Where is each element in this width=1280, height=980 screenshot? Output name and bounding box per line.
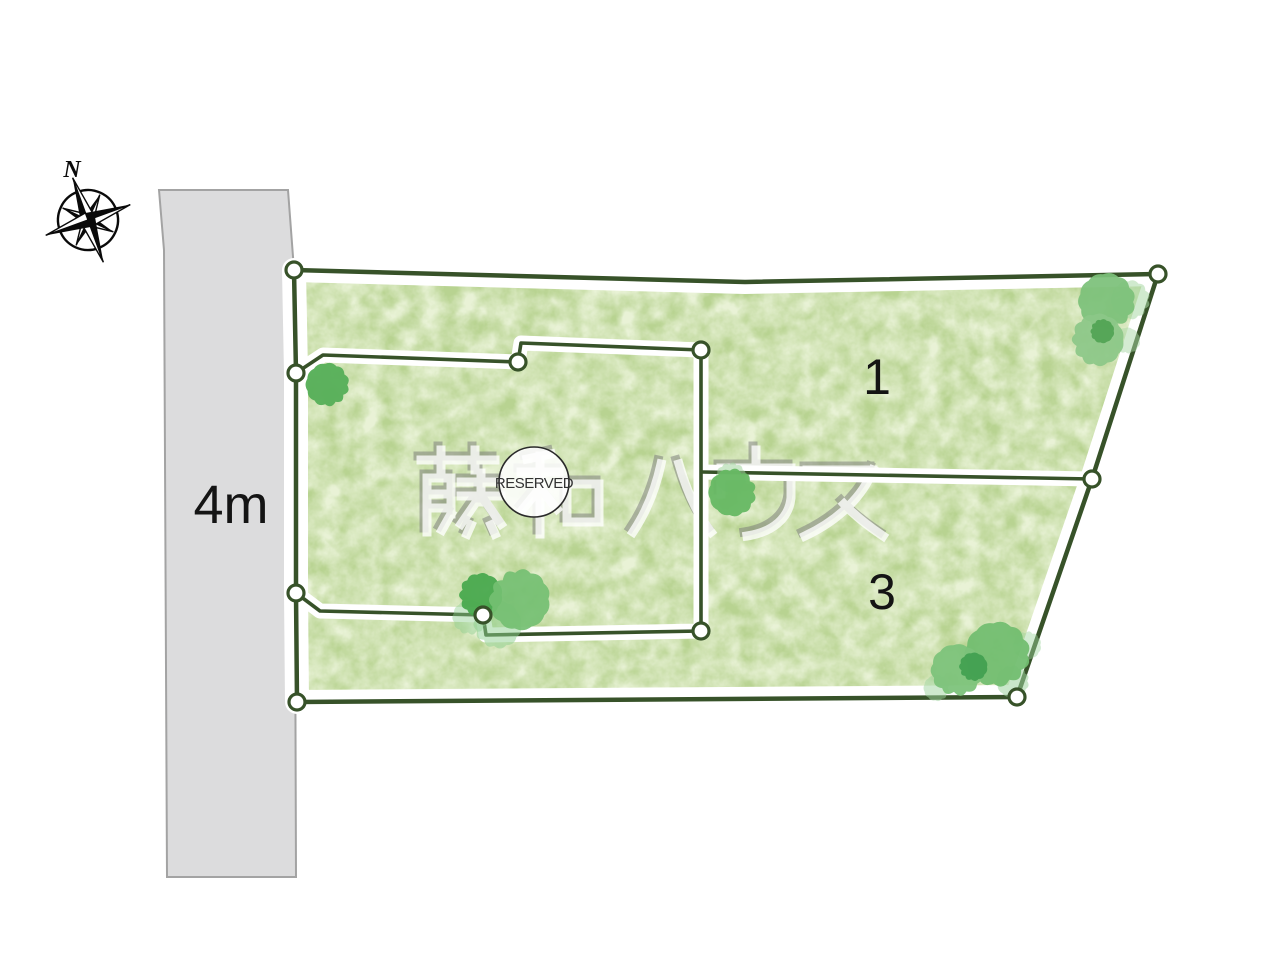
lot-3-label: 3 [868, 564, 896, 620]
reserved-label: RESERVED [495, 475, 574, 492]
site-plan-drawing: RESERVED 1 3 4m N [0, 0, 1280, 980]
compass-rose-icon [30, 162, 145, 277]
compass-north-label: N [62, 157, 82, 183]
site-plan-page: RESERVED 1 3 4m N [0, 0, 1280, 980]
lot-1-label: 1 [863, 349, 891, 405]
road-width-label: 4m [193, 475, 268, 535]
